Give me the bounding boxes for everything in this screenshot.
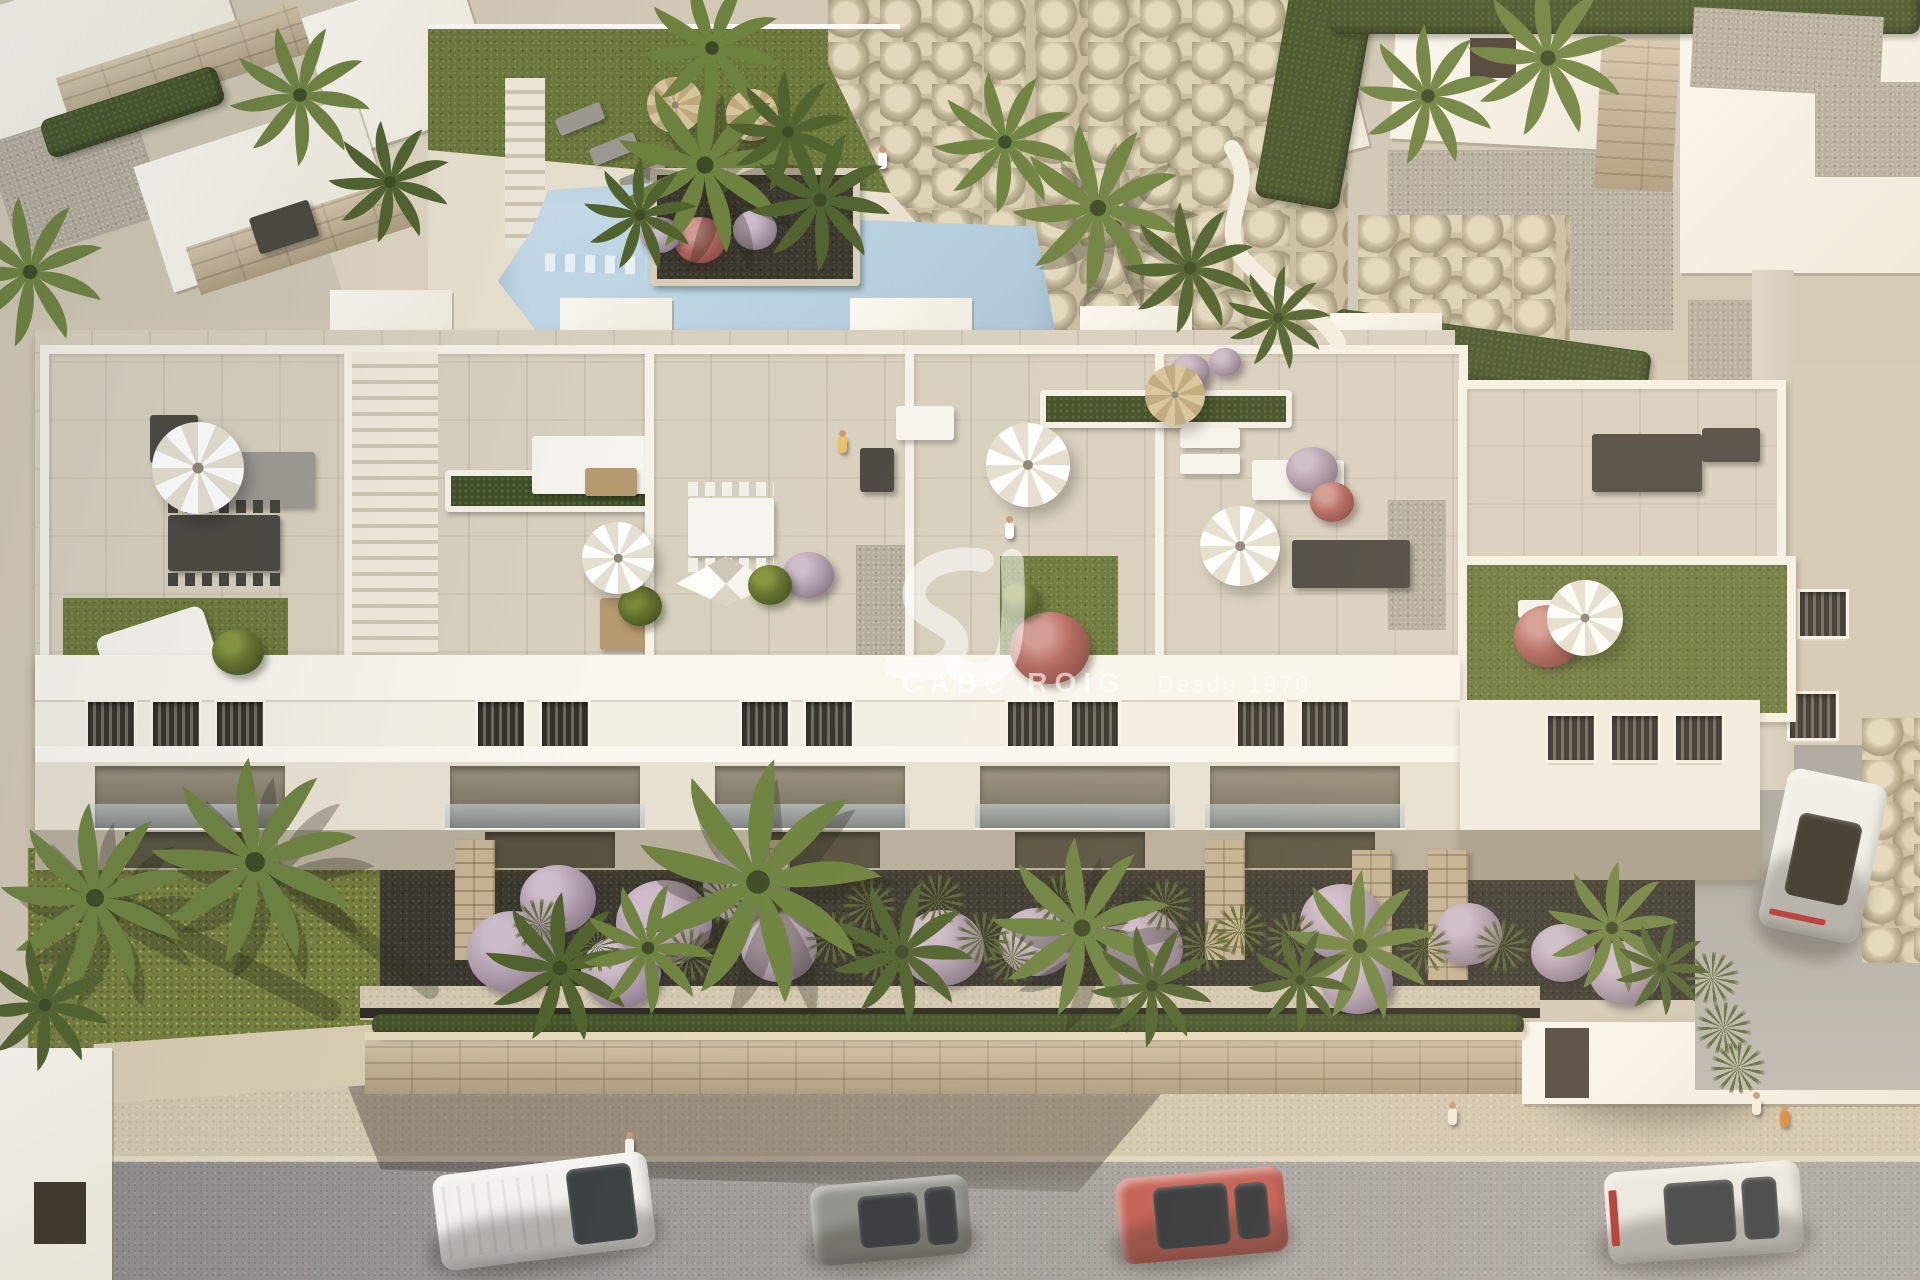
facade-window — [478, 702, 524, 746]
apartment-building — [30, 288, 1770, 1008]
dining-table-white — [688, 498, 774, 556]
building-facade — [35, 655, 1460, 870]
ground-opening — [1015, 832, 1145, 868]
coffee-table — [585, 468, 637, 496]
balcony-glass-rail — [90, 804, 290, 828]
left-corner-structure — [0, 1048, 112, 1280]
facade-window — [1238, 702, 1284, 746]
left-corner-doorway — [34, 1182, 86, 1244]
roof-planter-hedge — [1040, 390, 1292, 428]
outdoor-sofa-white — [1252, 460, 1344, 500]
facade-window — [88, 702, 134, 746]
facade-window — [1072, 702, 1118, 746]
chairs — [688, 482, 774, 496]
storage-box — [860, 448, 894, 492]
right-house-roof-b — [1815, 82, 1920, 177]
stone-wall-cap — [365, 1032, 1525, 1040]
facade-window — [217, 702, 263, 746]
stone-pier — [1428, 850, 1468, 980]
balcony-glass-rail — [975, 804, 1175, 828]
right-wing-door — [1470, 38, 1516, 78]
sun-lounger — [1518, 624, 1570, 642]
stairwell — [352, 352, 438, 692]
annex-window — [1676, 716, 1722, 760]
facade-top-strip — [35, 655, 1460, 702]
balcony-glass-rail — [1205, 804, 1405, 828]
facade-window — [542, 702, 588, 746]
stone-pier — [1205, 840, 1245, 960]
annex-ground-shade — [1460, 830, 1760, 880]
stone-pier — [455, 840, 495, 960]
stone-pier — [1352, 850, 1392, 980]
annex-facade — [1460, 700, 1760, 880]
chairs — [168, 573, 280, 586]
storage-box — [150, 415, 198, 463]
dining-table-white — [896, 406, 954, 440]
annex-window — [1612, 716, 1658, 760]
dining-set-dark — [1592, 434, 1702, 492]
pool-planter-island — [650, 168, 860, 286]
driveway-pebble-strip — [1862, 718, 1920, 963]
annex-roof-lawn — [1458, 556, 1796, 722]
right-stone-accent — [1594, 38, 1680, 192]
right-gate — [1545, 1028, 1589, 1098]
pool-fence — [428, 24, 900, 29]
right-wing — [1390, 17, 1608, 150]
facade-window — [1008, 702, 1054, 746]
aerial-render-scene: CABO ROIG Desde 1970 — [0, 0, 1920, 1280]
sun-lounger — [1180, 454, 1240, 474]
balcony-slab — [35, 746, 1460, 762]
facade-window — [153, 702, 199, 746]
pergola-box — [1292, 540, 1410, 588]
dining-table-dark — [168, 515, 280, 571]
right-neighbour-window — [1790, 694, 1836, 738]
stone-pier — [750, 840, 790, 960]
sun-lounger — [1180, 428, 1240, 448]
facade-window — [742, 702, 788, 746]
storage-box — [1702, 428, 1760, 462]
ground-opening — [125, 832, 255, 868]
annex-window — [1548, 716, 1594, 760]
sun-lounger — [1518, 600, 1570, 618]
balcony-glass-rail — [710, 804, 910, 828]
facade-window — [806, 702, 852, 746]
right-neighbour-window — [1800, 592, 1846, 636]
retaining-stone-wall — [365, 1034, 1525, 1094]
pool-roman-steps — [545, 253, 646, 274]
chairs — [168, 500, 280, 513]
ground-opening — [485, 832, 615, 868]
facade-window — [1302, 702, 1348, 746]
balcony-glass-rail — [445, 804, 645, 828]
